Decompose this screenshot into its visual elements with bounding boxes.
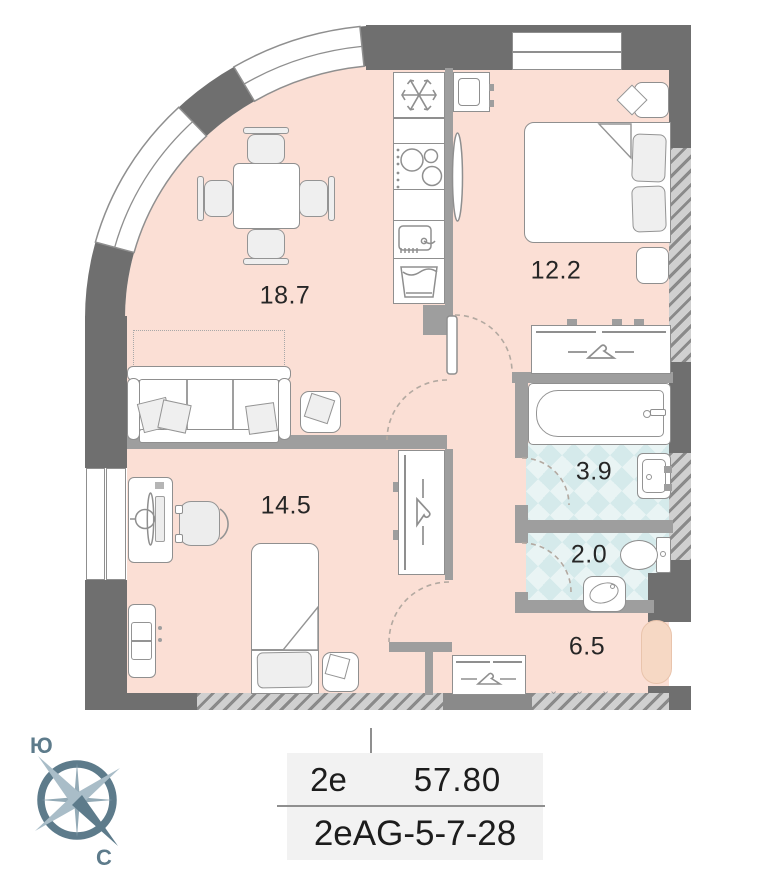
compass-needle-ns <box>74 763 80 837</box>
total-area-value: 57.80 <box>372 753 543 806</box>
kitchen-counter-2 <box>393 189 445 221</box>
compass-needle-ew <box>41 797 113 803</box>
bathroom-sink-tap-1 <box>664 466 672 473</box>
wall-bedroom2-corridor <box>445 449 453 580</box>
dresser-knob-1 <box>158 626 162 630</box>
bedroom-wardrobe-shelf-line-2 <box>602 331 666 333</box>
wall-right-hatched-1 <box>669 148 691 362</box>
compass-needle-nw <box>38 756 82 805</box>
bedroom-wardrobe-shelf-line-1 <box>536 331 596 333</box>
wall-bathroom-wc <box>515 520 673 533</box>
floor-plan-page: ⌄ ⌄ ⌄ <box>0 0 760 891</box>
top-window-inner-pane <box>512 52 622 70</box>
wall-cabinet-hinge-1 <box>489 84 494 91</box>
hall-wardrobe-shelf-line-2 <box>493 661 522 663</box>
desk-keyboard <box>155 496 165 542</box>
wall-bedroom2-hall <box>425 650 433 695</box>
curved-window-2 <box>234 27 364 102</box>
room-area-label-hallway: 6.5 <box>569 633 605 662</box>
wall-cabinet-hinge-2 <box>489 100 494 107</box>
wall-left-2 <box>85 580 127 710</box>
room-area-label-bedroom: 12.2 <box>531 257 582 286</box>
wall-right-1 <box>669 25 691 148</box>
wall-bathroom-left-1 <box>515 383 528 458</box>
wall-right-3 <box>669 560 691 622</box>
wall-bottom-hatched-1 <box>197 693 443 710</box>
hall-wardrobe-shelf-line-1 <box>456 661 490 663</box>
toilet-button <box>660 551 666 557</box>
compass-label-south: Ю <box>30 733 53 759</box>
dining-chair-top-back <box>243 127 289 134</box>
compass-needle-se <box>72 795 118 846</box>
dining-chair-right-back <box>328 176 335 221</box>
compass-needle-nesw <box>35 768 120 831</box>
coat-hook-2: ⌄ <box>575 686 584 696</box>
wall-left-1 <box>85 316 127 468</box>
dining-chair-top <box>247 134 285 164</box>
bedroom2-wardrobe-shelf-line <box>404 455 406 570</box>
dining-chair-right <box>299 180 328 217</box>
sofa-arm-right <box>278 378 291 440</box>
bathroom-sink-tap-2 <box>664 484 672 491</box>
bathroom-sink-drain <box>646 474 652 480</box>
coat-hook-1: ⌄ <box>549 686 558 696</box>
compass-ring <box>41 764 113 836</box>
wall-kitchen-stub <box>423 305 447 335</box>
kitchen-counter-1 <box>393 118 445 144</box>
dining-chair-bottom-back <box>243 258 289 265</box>
top-window-outer-pane <box>512 32 622 52</box>
room-area-label-wc: 2.0 <box>571 541 607 570</box>
bed-pillow-2 <box>631 185 667 232</box>
sofa-pillow-3 <box>245 402 278 435</box>
single-bed-pillow <box>257 652 313 689</box>
entry-door-opening <box>669 622 692 686</box>
dining-table <box>233 163 300 229</box>
hall-rug <box>641 620 672 684</box>
wall-bottom-wardrobe-base <box>443 693 532 710</box>
bed-pillow-1 <box>631 133 667 182</box>
left-window-inner-pane <box>106 468 126 580</box>
single-bed-blanket-line <box>252 649 318 651</box>
wall-cabinet-inner <box>458 78 480 106</box>
sofa-pillow-2 <box>157 399 191 433</box>
wall-kitchen <box>445 68 453 318</box>
fridge <box>393 72 445 118</box>
bathtub-faucet <box>650 409 666 416</box>
apartment-code-value: 2eAG-5-7-28 <box>287 807 543 860</box>
coat-hook-3: ⌄ <box>601 686 610 696</box>
wall-bedroom2-jog <box>389 642 452 652</box>
dresser-drawer-line <box>132 640 151 642</box>
left-window-outer-pane <box>86 468 105 580</box>
washing-machine <box>393 258 445 304</box>
compass-rose: Ю С <box>22 733 147 878</box>
dining-chair-left <box>204 180 233 217</box>
wall-right-hatched-2 <box>669 453 691 560</box>
dining-chair-bottom <box>247 229 285 259</box>
dresser-knob-2 <box>158 638 162 642</box>
wall-entry-jamb <box>648 573 669 622</box>
wc-basin-drain <box>610 584 615 589</box>
kitchen-sink-unit <box>393 220 445 259</box>
dining-chair-left-back <box>197 176 204 221</box>
curved-window-1 <box>95 107 206 252</box>
room-area-label-bedroom2: 14.5 <box>261 492 312 521</box>
compass-label-north: С <box>96 845 112 871</box>
sofa-seam-2 <box>232 380 234 430</box>
layout-type-value: 2e <box>287 753 370 806</box>
room-area-label-bathroom: 3.9 <box>576 458 612 487</box>
office-chair-arm-1 <box>175 505 183 514</box>
toilet-bowl <box>620 540 658 570</box>
cooktop <box>393 143 445 190</box>
office-chair-arm-2 <box>175 534 183 543</box>
office-chair <box>179 501 220 546</box>
room-area-label-living: 18.7 <box>260 282 311 311</box>
desk <box>128 477 173 563</box>
nightstand-bottom <box>636 247 669 284</box>
desk-item <box>155 482 164 489</box>
